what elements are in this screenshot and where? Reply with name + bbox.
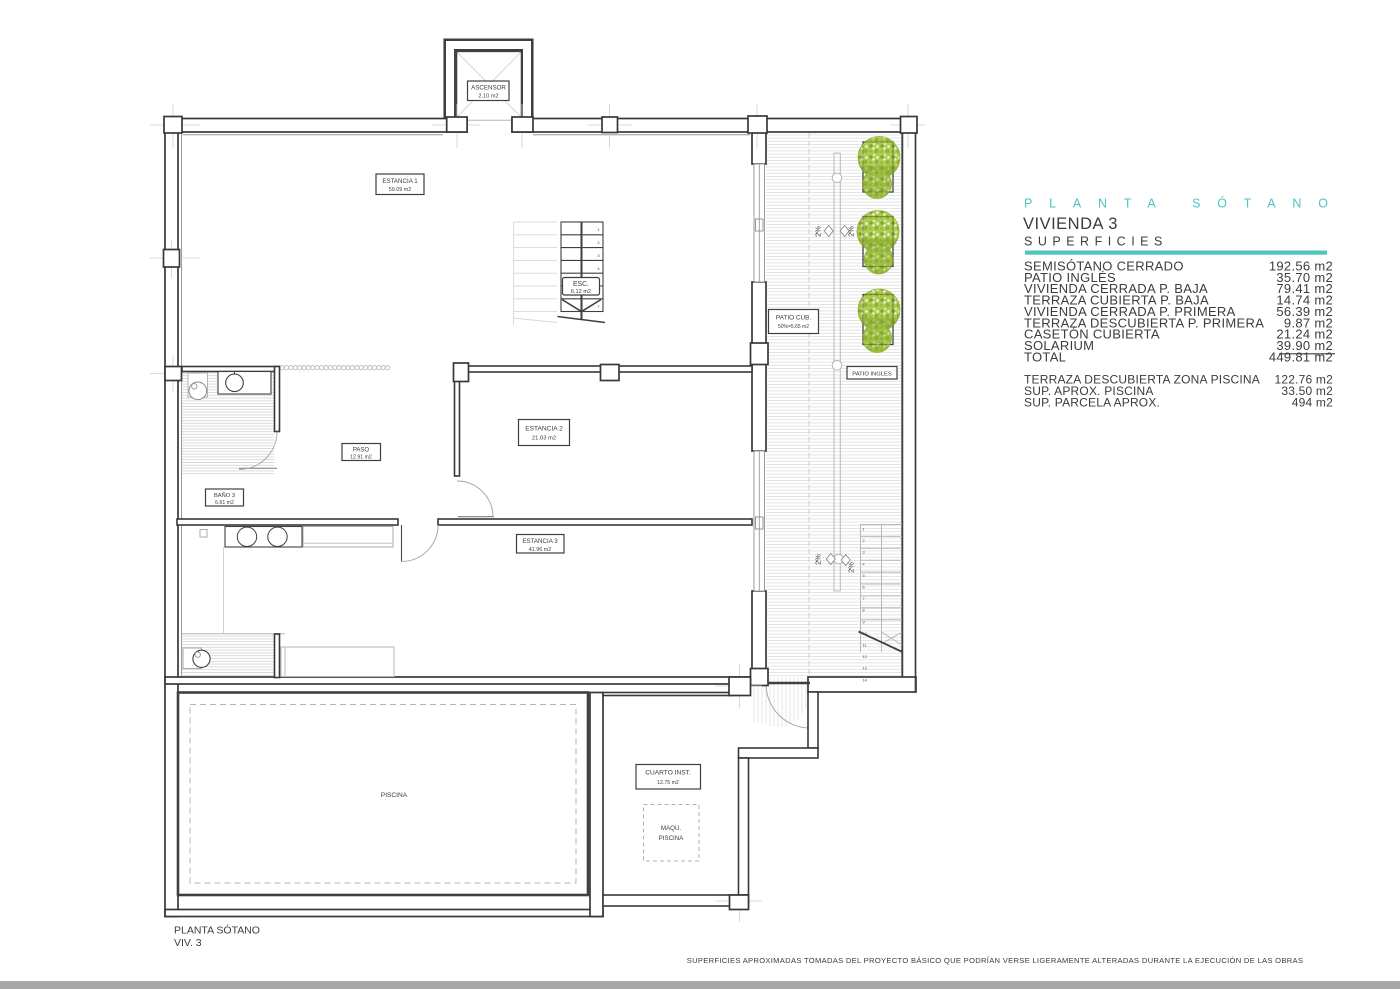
svg-text:SUP. PARCELA APROX.: SUP. PARCELA APROX. [1024, 396, 1160, 410]
svg-text:PLANTA SÓTANO: PLANTA SÓTANO [1024, 196, 1345, 211]
svg-text:PLANTA SÓTANO: PLANTA SÓTANO [174, 924, 260, 937]
svg-text:5: 5 [863, 574, 865, 578]
svg-text:ESC.: ESC. [573, 281, 589, 288]
svg-text:SUPERFICIES: SUPERFICIES [1024, 235, 1168, 249]
svg-text:12.91 m2: 12.91 m2 [350, 454, 372, 460]
svg-text:6: 6 [863, 586, 865, 590]
svg-text:MAQU.: MAQU. [661, 825, 682, 832]
svg-text:7: 7 [863, 597, 865, 601]
svg-text:8: 8 [863, 609, 865, 613]
svg-text:50%=5.65 m2: 50%=5.65 m2 [778, 324, 809, 330]
svg-text:449.81 m2: 449.81 m2 [1269, 349, 1333, 364]
svg-text:SUPERFICIES APROXIMADAS TOMADA: SUPERFICIES APROXIMADAS TOMADAS DEL PROY… [687, 956, 1303, 965]
svg-text:PASO: PASO [353, 448, 370, 454]
svg-text:10: 10 [863, 632, 867, 636]
svg-text:12: 12 [863, 655, 867, 659]
svg-text:11: 11 [863, 644, 867, 648]
svg-text:PISCINA: PISCINA [381, 792, 408, 799]
svg-text:12.75 m2: 12.75 m2 [657, 780, 679, 786]
svg-text:6.61 m2: 6.61 m2 [215, 500, 234, 506]
svg-text:CUARTO INST.: CUARTO INST. [645, 770, 691, 777]
svg-text:3: 3 [863, 551, 865, 555]
svg-text:1: 1 [863, 528, 865, 532]
svg-text:2%: 2% [814, 554, 823, 565]
svg-text:2%: 2% [814, 226, 823, 237]
svg-text:2%: 2% [847, 562, 856, 573]
svg-text:ESTANCIA 2: ESTANCIA 2 [525, 426, 563, 433]
svg-text:BAÑO 3: BAÑO 3 [214, 492, 235, 499]
svg-text:6.12 m2: 6.12 m2 [571, 289, 591, 295]
svg-text:ESTANCIA 3: ESTANCIA 3 [522, 538, 558, 545]
svg-text:ASCENSOR: ASCENSOR [471, 85, 506, 92]
svg-text:4: 4 [863, 562, 865, 566]
svg-text:PISCINA: PISCINA [659, 835, 685, 842]
svg-text:2%: 2% [847, 226, 856, 237]
svg-text:2.10 m2: 2.10 m2 [478, 94, 498, 100]
svg-text:21.03 m2: 21.03 m2 [532, 436, 556, 442]
svg-text:VIV. 3: VIV. 3 [174, 937, 202, 949]
svg-text:PATIO CUB.: PATIO CUB. [776, 315, 811, 322]
svg-text:2: 2 [863, 539, 865, 543]
svg-text:41.96 m2: 41.96 m2 [529, 547, 551, 553]
svg-text:PATIO INGLES: PATIO INGLES [852, 371, 892, 377]
svg-text:14: 14 [863, 678, 867, 682]
svg-text:9: 9 [863, 620, 865, 624]
svg-text:59.09 m2: 59.09 m2 [389, 187, 411, 193]
svg-text:494 m2: 494 m2 [1292, 396, 1333, 410]
svg-text:ESTANCIA 1: ESTANCIA 1 [382, 178, 418, 185]
svg-text:VIVIENDA 3: VIVIENDA 3 [1023, 215, 1118, 233]
svg-text:13: 13 [863, 667, 867, 671]
svg-text:TOTAL: TOTAL [1024, 349, 1066, 364]
